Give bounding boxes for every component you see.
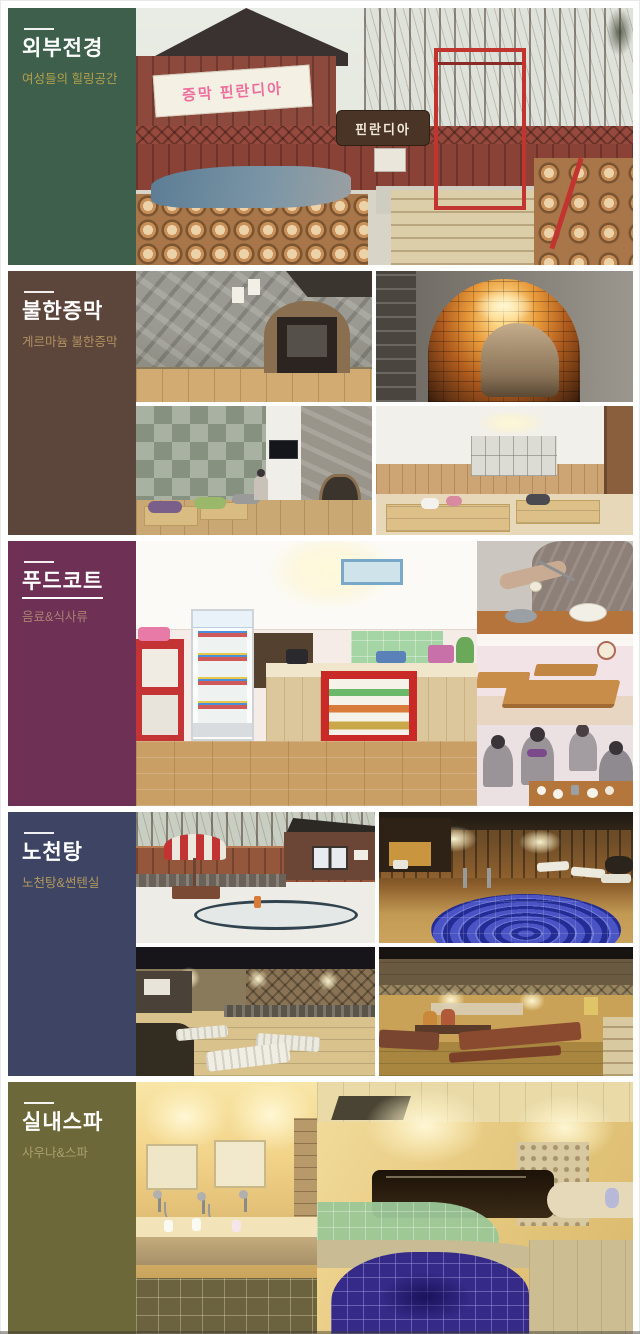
photo-rest-room [136, 406, 372, 535]
red-vending-cabinet [136, 639, 184, 751]
section-subtitle: 노천탕&썬텐실 [22, 872, 136, 891]
title-overline [24, 291, 54, 293]
photo-stone-kiln-room [136, 271, 372, 402]
steel-bowl [505, 609, 537, 623]
photo-night-pavilion [379, 947, 633, 1076]
title-overline [24, 832, 54, 834]
light-stairs [603, 1017, 633, 1076]
section-title: 노천탕 [22, 841, 136, 865]
kiln-door [277, 317, 337, 373]
deep-water-shadow [381, 1272, 471, 1322]
pink-basket [138, 627, 170, 641]
snack-display-case [321, 671, 417, 743]
snow-covered-pool [194, 900, 358, 930]
page: 외부전경 여성들의 힐링공간 증막 핀란디아 핀란디아 [0, 0, 640, 1334]
lying-person [148, 501, 182, 513]
blue-tarp [151, 166, 351, 208]
kiln-door-panel [287, 325, 327, 357]
toiletry-bottle [164, 1220, 173, 1232]
photo-area-food-court [136, 541, 633, 806]
dish [605, 786, 614, 795]
photo-kiln-interior [376, 271, 633, 402]
lamp-glow [519, 830, 561, 854]
white-lounger [601, 874, 631, 883]
section-title: 실내스파 [22, 1111, 136, 1135]
section-bulhan-sauna: 불한증막 게르마늄 불한증막 [8, 271, 633, 535]
photo-night-deck [136, 947, 375, 1076]
section-title: 불한증막 [22, 300, 136, 324]
blue-tile-pool [331, 1252, 529, 1334]
white-chair [393, 860, 408, 869]
pool-rail [463, 868, 467, 888]
ladle-scoop [529, 581, 542, 592]
purple-scarf [527, 749, 547, 757]
round-blue-tile-pool [431, 894, 621, 943]
photo-exterior-entrance: 증막 핀란디아 핀란디아 [136, 8, 633, 265]
mirror [146, 1144, 198, 1190]
sidebar-food-court: 푸드코트 음료&식사류 [8, 541, 136, 806]
shower-head [197, 1192, 206, 1201]
wall-tv [269, 440, 298, 459]
toiletry-bottle [192, 1218, 201, 1231]
transom-window [341, 559, 403, 585]
clothes-pile [421, 498, 439, 509]
photo-food-court-hall [136, 541, 477, 806]
sidebar-bulhan-sauna: 불한증막 게르마늄 불한증막 [8, 271, 136, 535]
white-screen [144, 979, 170, 995]
lamp-glow [474, 289, 534, 323]
person-head [257, 469, 265, 477]
section-title: 푸드코트 [22, 570, 103, 599]
shower-head [239, 1190, 248, 1199]
person-head [609, 741, 623, 755]
photo-night-round-spa [379, 812, 633, 943]
lockers [471, 436, 557, 476]
photo-area-bulhan [136, 271, 633, 535]
wood-sign: 핀란디아 [336, 110, 430, 146]
photo-locker-room [376, 406, 633, 535]
shower-head [153, 1190, 162, 1199]
cabinet-panel [142, 649, 178, 687]
photo-area-exterior: 증막 핀란디아 핀란디아 [136, 8, 633, 265]
low-table [534, 664, 599, 676]
blue-basket [376, 651, 406, 663]
section-subtitle: 사우나&스파 [22, 1142, 136, 1161]
window [312, 846, 348, 870]
tile-lines [431, 894, 621, 943]
notice-paper [232, 287, 244, 303]
sidebar-exterior: 외부전경 여성들의 힐링공간 [8, 8, 136, 265]
section-subtitle: 여성들의 힐링공간 [22, 68, 136, 87]
person-head [491, 735, 505, 749]
clothes-pile [526, 494, 550, 505]
red-umbrella [164, 834, 226, 860]
cabinet-panel [142, 695, 178, 735]
photo-area-open-air [136, 812, 633, 1076]
section-open-air-bath: 노천탕 노천탕&썬텐실 [8, 812, 633, 1076]
plant [456, 637, 474, 663]
wall-clock [597, 641, 616, 660]
photo-shower-stations [136, 1082, 317, 1334]
photo-sikhye-ladle [477, 541, 633, 634]
section-subtitle: 음료&식사류 [22, 606, 136, 625]
bottle-shelves [198, 631, 247, 723]
wood-floor [136, 741, 477, 806]
pale-curb [547, 1182, 633, 1218]
dark-tile-floor [136, 1278, 317, 1334]
red-gate-frame [434, 48, 526, 210]
section-title: 외부전경 [22, 37, 136, 61]
straw-mat [386, 504, 510, 532]
dish [587, 788, 598, 798]
title-overline [24, 1102, 54, 1104]
wood-table [477, 611, 633, 634]
ceiling-light [476, 410, 546, 436]
dish [537, 786, 546, 795]
lamp-glow [248, 969, 268, 989]
rough-door-edge [376, 271, 416, 402]
photo-snowy-pool [136, 812, 375, 943]
photo-area-indoor-spa [136, 1082, 633, 1334]
wood-sign-text: 핀란디아 [355, 119, 411, 138]
bather [605, 1188, 619, 1208]
snack-shelves [329, 679, 409, 735]
low-table [502, 680, 621, 708]
sidebar-open-air-bath: 노천탕 노천탕&썬텐실 [8, 812, 136, 1076]
section-food-court: 푸드코트 음료&식사류 [8, 541, 633, 806]
orange-marker [254, 896, 261, 908]
pavilion-ceiling [379, 959, 633, 987]
sidebar-indoor-spa: 실내스파 사우나&스파 [8, 1082, 136, 1334]
small-sign [354, 850, 368, 860]
fridge-header [193, 611, 252, 628]
dining-table [529, 781, 633, 806]
dark-rocks [605, 856, 633, 874]
seated-person [521, 735, 554, 785]
mailbox [374, 148, 406, 172]
clothes-pile [446, 496, 462, 506]
photo-indoor-spa-pool [317, 1082, 633, 1334]
checkered-stone-wall [136, 406, 266, 502]
lying-person [194, 497, 226, 509]
photo-people-eating [477, 725, 633, 806]
rice-drink-bowl [569, 603, 607, 622]
sitting-person [254, 476, 268, 500]
drink-fridge [191, 609, 254, 741]
title-overline [24, 561, 54, 563]
picnic-table [379, 1029, 439, 1050]
small-structure [136, 971, 192, 1013]
bath-house [379, 818, 451, 872]
picnic-table [172, 886, 220, 899]
section-indoor-spa: 실내스파 사우나&스파 [8, 1082, 633, 1334]
dish [553, 789, 563, 799]
firewood-stack-right [534, 158, 633, 265]
notice-paper [248, 279, 260, 295]
fridge-grill [193, 723, 252, 737]
ledge-front [136, 1237, 317, 1265]
pink-box [428, 645, 454, 663]
toiletry-bottle [232, 1220, 241, 1232]
photo-dining-room [477, 634, 633, 725]
seated-person [569, 731, 597, 771]
person-head [576, 725, 589, 737]
person-head [530, 727, 545, 742]
dark-conifer [566, 8, 633, 128]
section-exterior: 외부전경 여성들의 힐링공간 증막 핀란디아 핀란디아 [8, 8, 633, 265]
mirror [214, 1140, 266, 1188]
poster [584, 997, 598, 1015]
window-banner-text: 증막 핀란디아 [181, 77, 283, 105]
steel-cup [571, 785, 579, 795]
section-subtitle: 게르마늄 불한증막 [22, 331, 136, 350]
seated-person [483, 743, 513, 787]
pool-rail [487, 868, 491, 888]
lamp-glow [318, 971, 338, 991]
stone-floor [529, 1240, 633, 1334]
light-glow [365, 1088, 485, 1164]
water-reflection [386, 1176, 526, 1178]
kettle [286, 649, 308, 664]
gate-crossbar [438, 62, 522, 65]
title-overline [24, 28, 54, 30]
building-wall [284, 832, 375, 880]
